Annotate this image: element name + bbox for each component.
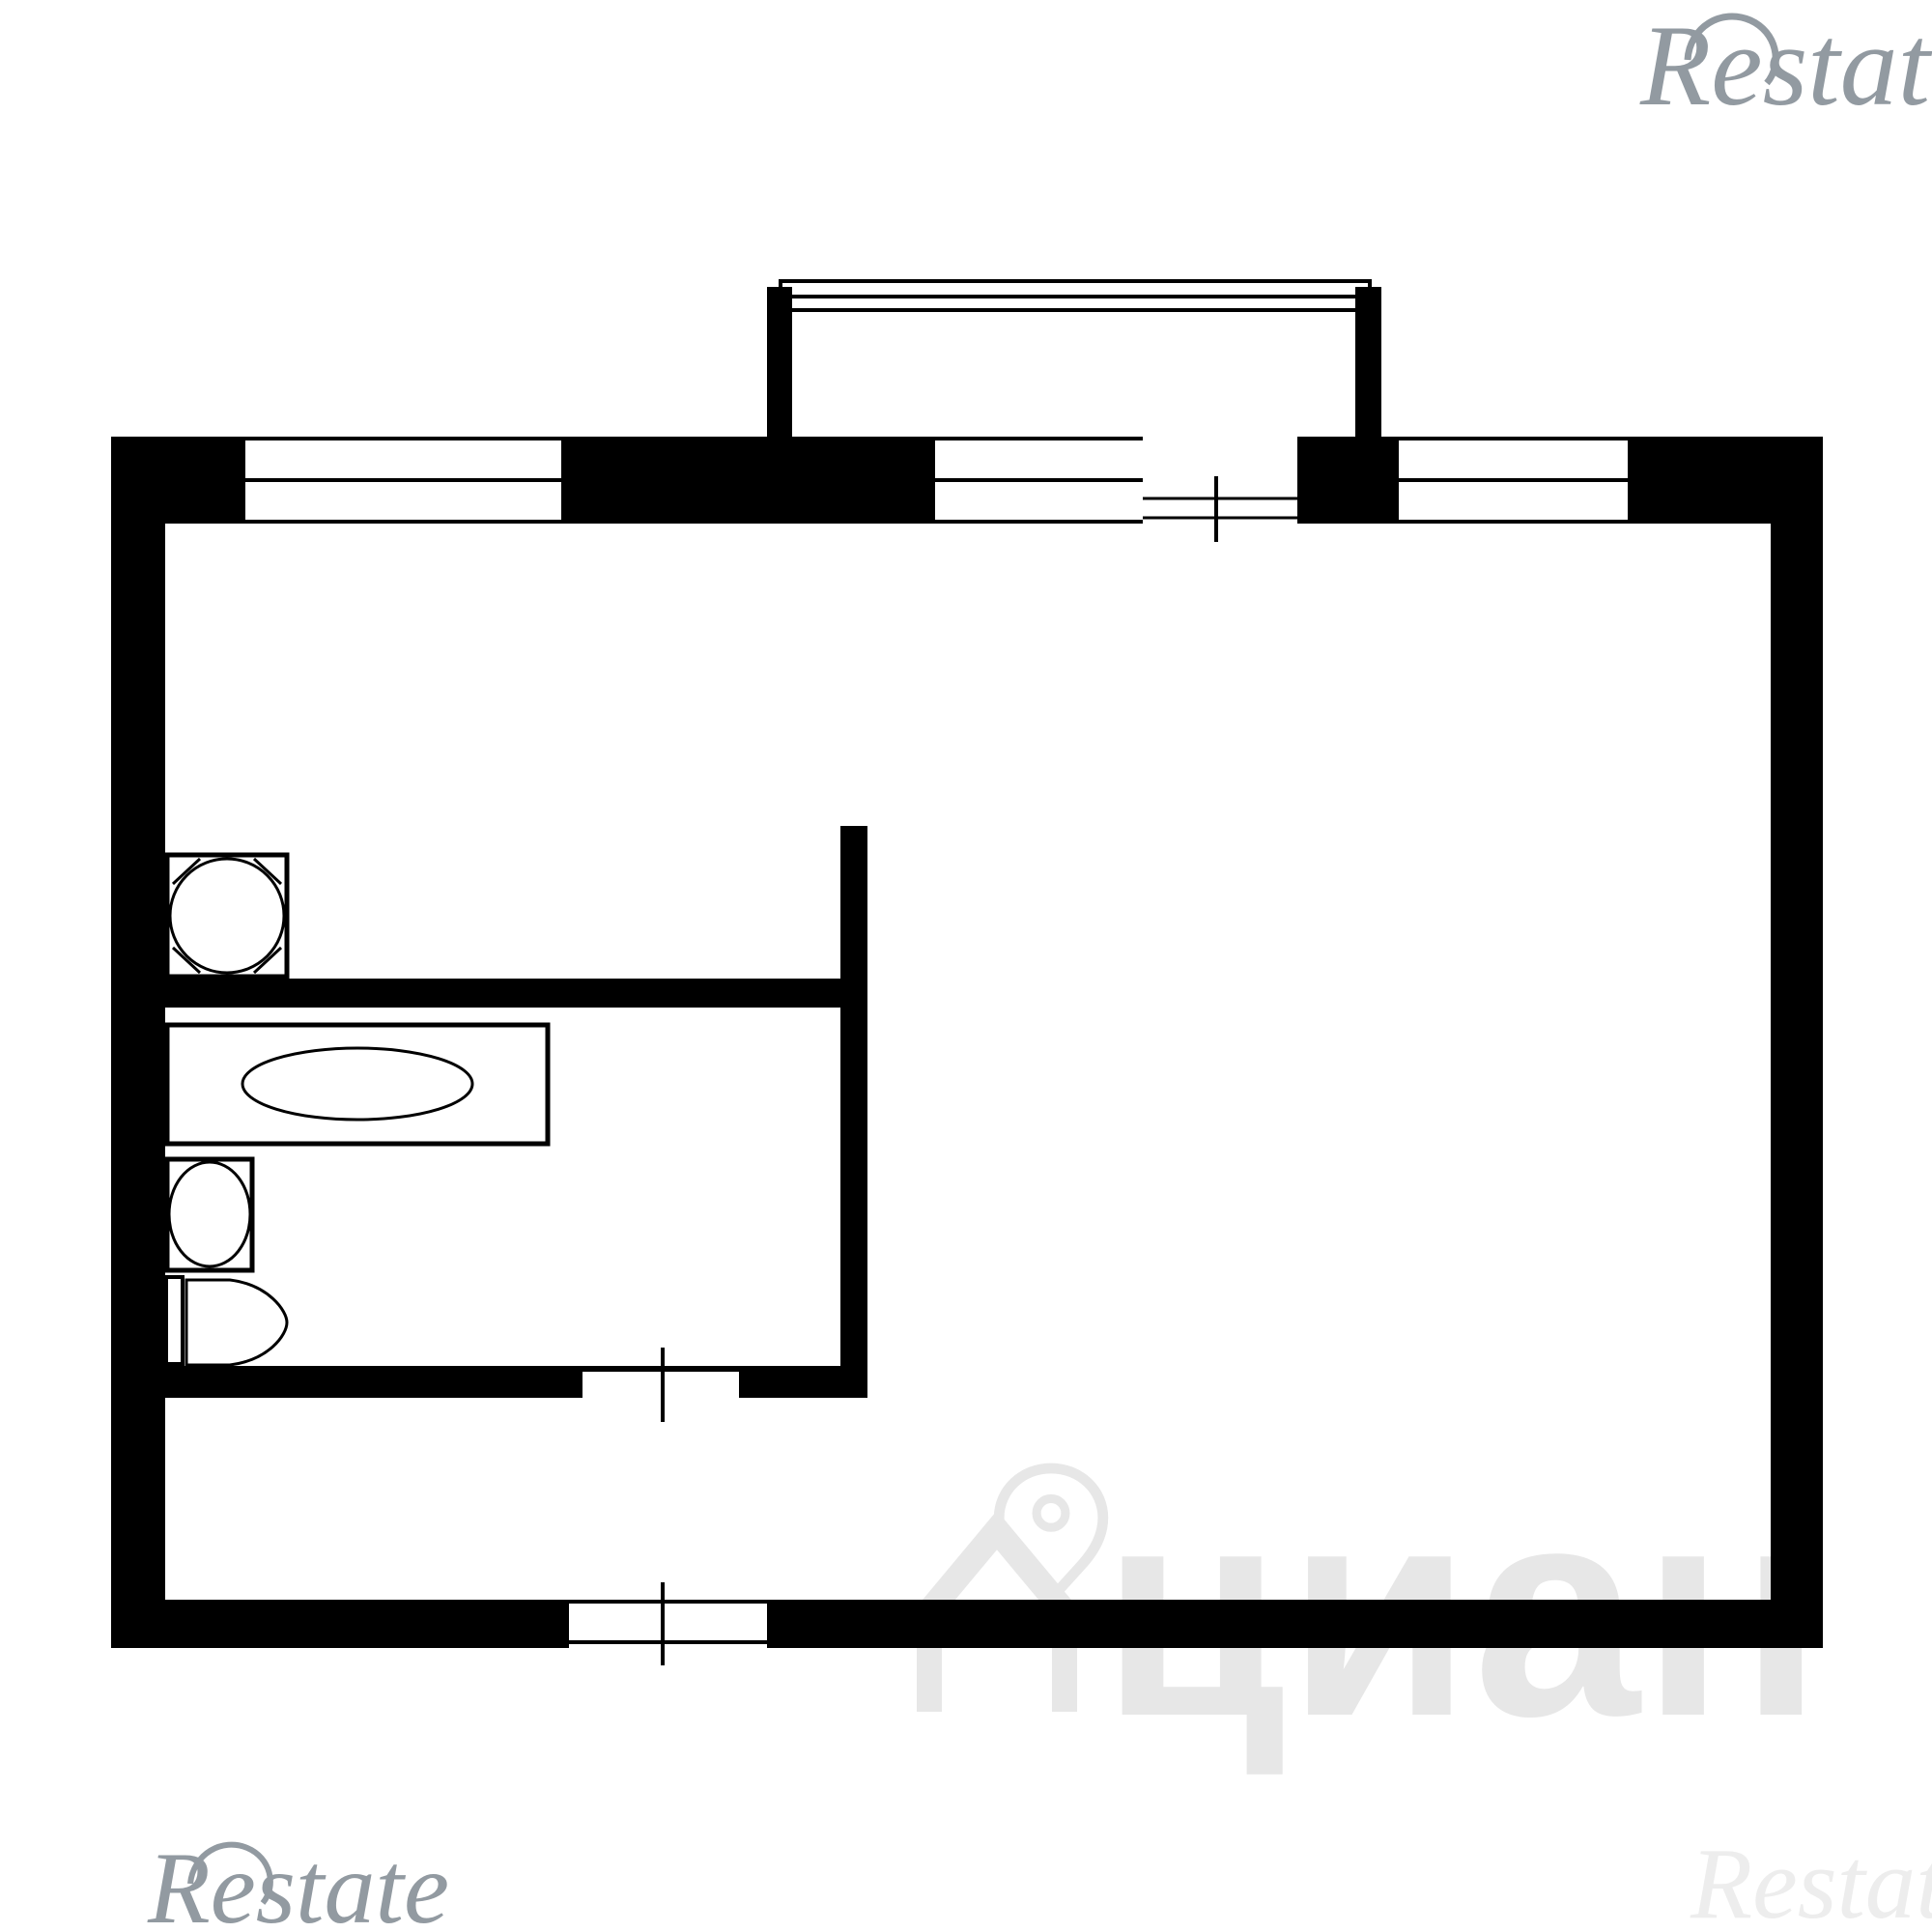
svg-text:Restate: Restate bbox=[1639, 1, 1932, 129]
svg-text:Restate: Restate bbox=[1690, 1827, 1932, 1932]
